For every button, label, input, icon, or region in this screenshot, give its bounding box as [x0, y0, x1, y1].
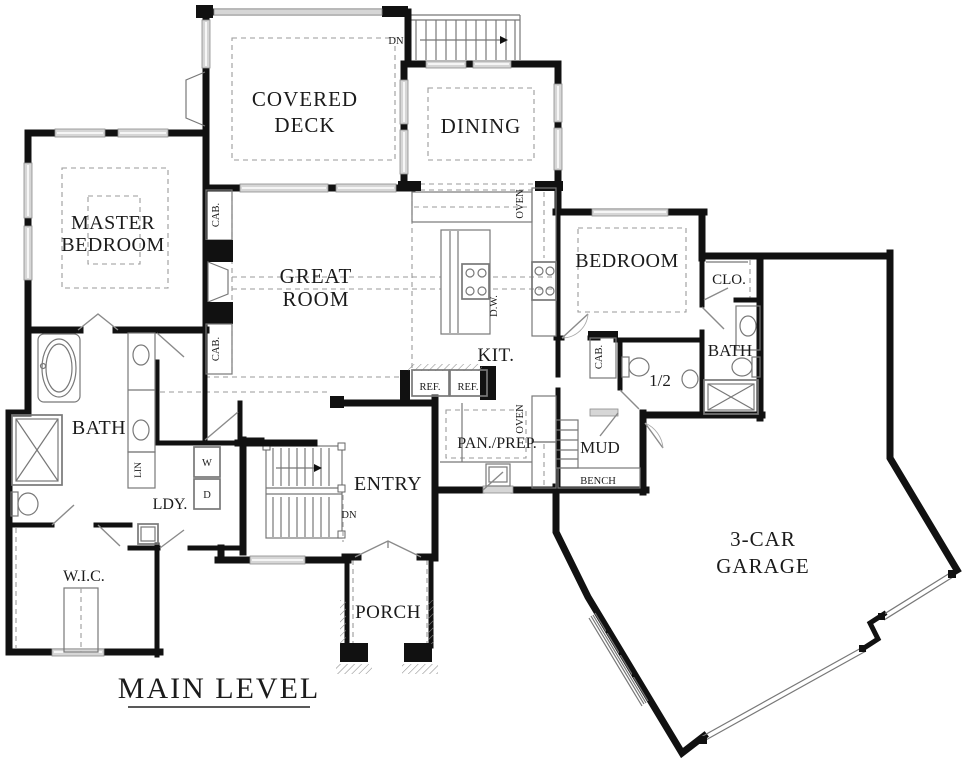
toilet-right-bath: [732, 358, 752, 376]
toilet-half-bath: [629, 358, 649, 376]
garage-entry-door: [645, 423, 663, 448]
cab-label-2: CAB.: [211, 337, 222, 361]
deck-stair-arrowhead: [500, 36, 508, 44]
washer-label: W: [202, 458, 212, 469]
clo-door: [704, 288, 728, 300]
dw-label: D.W.: [489, 295, 500, 317]
clo-label: CLO.: [712, 272, 746, 288]
floor-plan-drawing: COVERED DECK DINING DN MASTER BEDROOM GR…: [0, 0, 969, 768]
garage-door-right-a2: [881, 573, 950, 616]
tub-faucet: [41, 364, 46, 369]
laundry-label: LDY.: [153, 496, 188, 513]
porch-pier-left: [340, 643, 368, 662]
bedroom-label: BEDROOM: [575, 250, 679, 272]
oven-label-2: OVEN: [515, 404, 526, 434]
master-double-door: [78, 314, 118, 330]
lin-label: LIN: [134, 462, 144, 478]
master-label-2: BEDROOM: [61, 234, 165, 256]
bath-right-door: [702, 307, 724, 329]
bath-right-label: BATH: [708, 341, 752, 360]
floor-plan: COVERED DECK DINING DN MASTER BEDROOM GR…: [0, 0, 969, 768]
wic-door-2: [98, 525, 120, 546]
garage-label-2: GARAGE: [716, 554, 810, 578]
pantry-label: PAN./PREP.: [457, 435, 536, 452]
sink-half-bath: [682, 370, 698, 388]
ref-label-2: REF.: [457, 382, 478, 393]
great-room-label-1: GREAT: [280, 264, 353, 288]
coat-closet-walls: [205, 400, 262, 440]
newel-posts: [263, 443, 345, 538]
main-level-title: MAIN LEVEL: [118, 672, 320, 705]
plan-title: MAIN LEVEL: [118, 672, 320, 707]
mud-door: [600, 413, 618, 436]
garage-doors: [589, 570, 956, 744]
garage-door-right-a1: [884, 577, 953, 620]
covered-deck-label-2: DECK: [274, 113, 335, 137]
deck-stairs: [410, 15, 520, 60]
great-room-label-2: ROOM: [282, 287, 349, 311]
firebox: [208, 262, 228, 302]
bench-label: BENCH: [580, 476, 616, 487]
wic-fixtures: [64, 588, 98, 652]
dn-deck-label: DN: [388, 36, 404, 47]
dn-entry-label: DN: [341, 510, 357, 521]
garage-label-1: 3-CAR: [730, 527, 796, 551]
wic-label: W.I.C.: [63, 568, 105, 585]
dryer-label: D: [203, 490, 211, 501]
mud-label: MUD: [580, 438, 620, 457]
hall-door: [160, 530, 184, 548]
kitchen-label: KIT.: [478, 345, 515, 366]
bath-left-door: [157, 333, 184, 357]
garage-door-right-b1: [704, 651, 866, 741]
porch-label: PORCH: [355, 602, 421, 623]
master-label-1: MASTER: [71, 212, 155, 234]
vanity-left: [128, 333, 155, 452]
dining-label: DINING: [441, 114, 522, 138]
bath-left-label: BATH: [72, 417, 126, 439]
kitchen-island: [441, 230, 490, 334]
garage-left-wall: [556, 487, 704, 753]
garage-right-wall: [890, 253, 957, 570]
ref-label-1: REF.: [419, 382, 440, 393]
half-bath-door: [620, 390, 639, 409]
covered-deck-label-1: COVERED: [252, 87, 358, 111]
toilet-left-bath: [18, 493, 38, 515]
sink-left-2: [133, 420, 149, 440]
porch-pier-right: [404, 643, 432, 662]
oven-label-1: OVEN: [515, 189, 526, 219]
entry-stair-treads-lower: [273, 497, 329, 537]
wic-door-1: [52, 505, 74, 525]
cab-label-1: CAB.: [211, 203, 222, 227]
half-bath-label: 1/2: [649, 371, 671, 390]
entry-label: ENTRY: [354, 473, 422, 495]
cab-label-3: CAB.: [594, 345, 605, 369]
coat-closet-door: [205, 412, 238, 440]
toilet-tank-half: [622, 357, 629, 377]
bay-window: [186, 72, 205, 126]
sink-left-1: [133, 345, 149, 365]
entry-stair-treads-upper: [273, 448, 329, 486]
garage-door-right-b2: [701, 647, 863, 737]
bath-wic-exterior-wall: [9, 333, 160, 652]
entry-stairs: [263, 443, 345, 542]
garage-door-left-hatch: [589, 613, 648, 706]
tub: [42, 339, 76, 397]
sink-right-bath: [740, 316, 756, 336]
